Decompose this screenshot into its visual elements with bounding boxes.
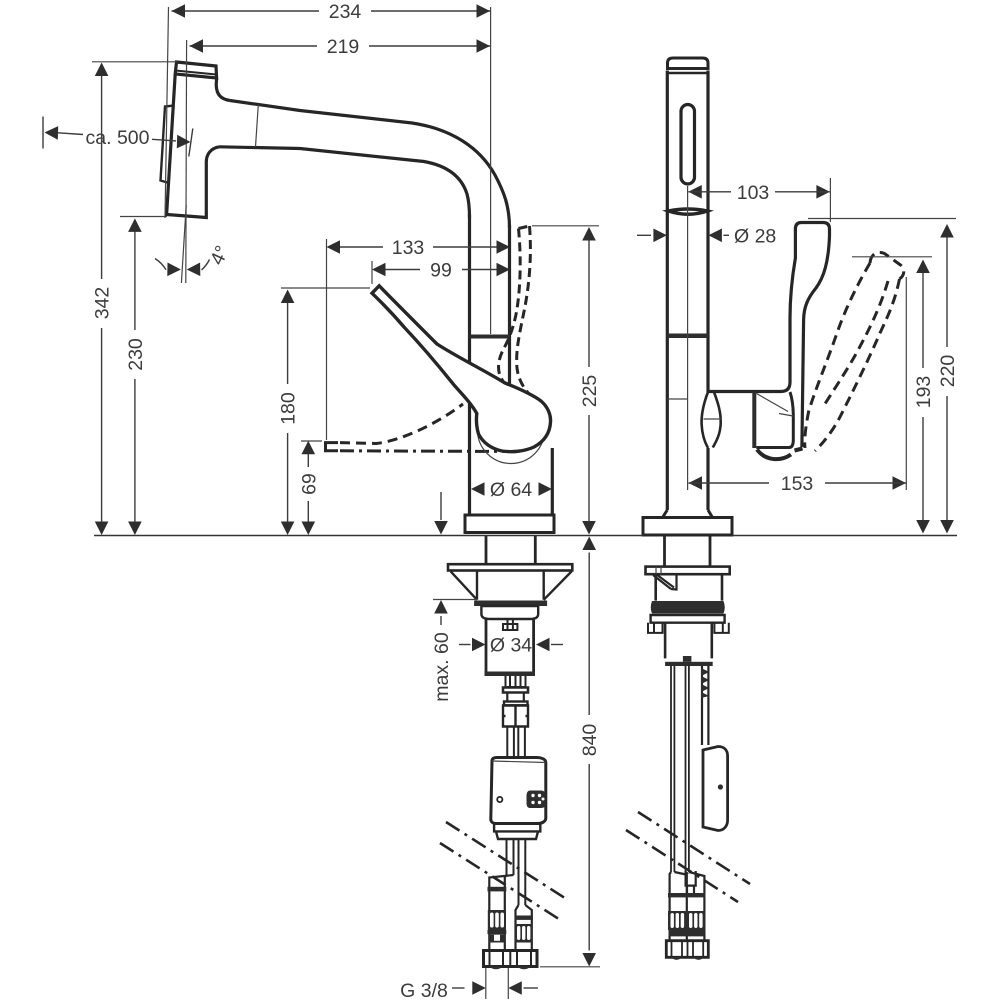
svg-text:193: 193 <box>913 376 935 409</box>
svg-text:342: 342 <box>92 287 114 320</box>
svg-text:230: 230 <box>125 338 147 371</box>
svg-text:Ø 64: Ø 64 <box>490 479 532 501</box>
svg-text:Ø 34: Ø 34 <box>490 635 532 657</box>
svg-text:99: 99 <box>430 260 452 282</box>
svg-text:225: 225 <box>579 375 601 408</box>
svg-text:180: 180 <box>278 392 300 425</box>
svg-text:153: 153 <box>781 473 814 495</box>
svg-text:133: 133 <box>392 237 425 259</box>
svg-text:G 3/8: G 3/8 <box>400 980 448 1000</box>
svg-text:69: 69 <box>298 473 320 495</box>
svg-text:ca. 500: ca. 500 <box>86 127 150 149</box>
svg-text:max. 60: max. 60 <box>431 632 453 702</box>
svg-text:220: 220 <box>937 355 959 388</box>
svg-text:103: 103 <box>737 182 770 204</box>
svg-text:219: 219 <box>327 36 360 58</box>
svg-text:234: 234 <box>329 1 362 23</box>
svg-text:840: 840 <box>579 724 601 757</box>
svg-text:Ø 28: Ø 28 <box>734 225 776 247</box>
